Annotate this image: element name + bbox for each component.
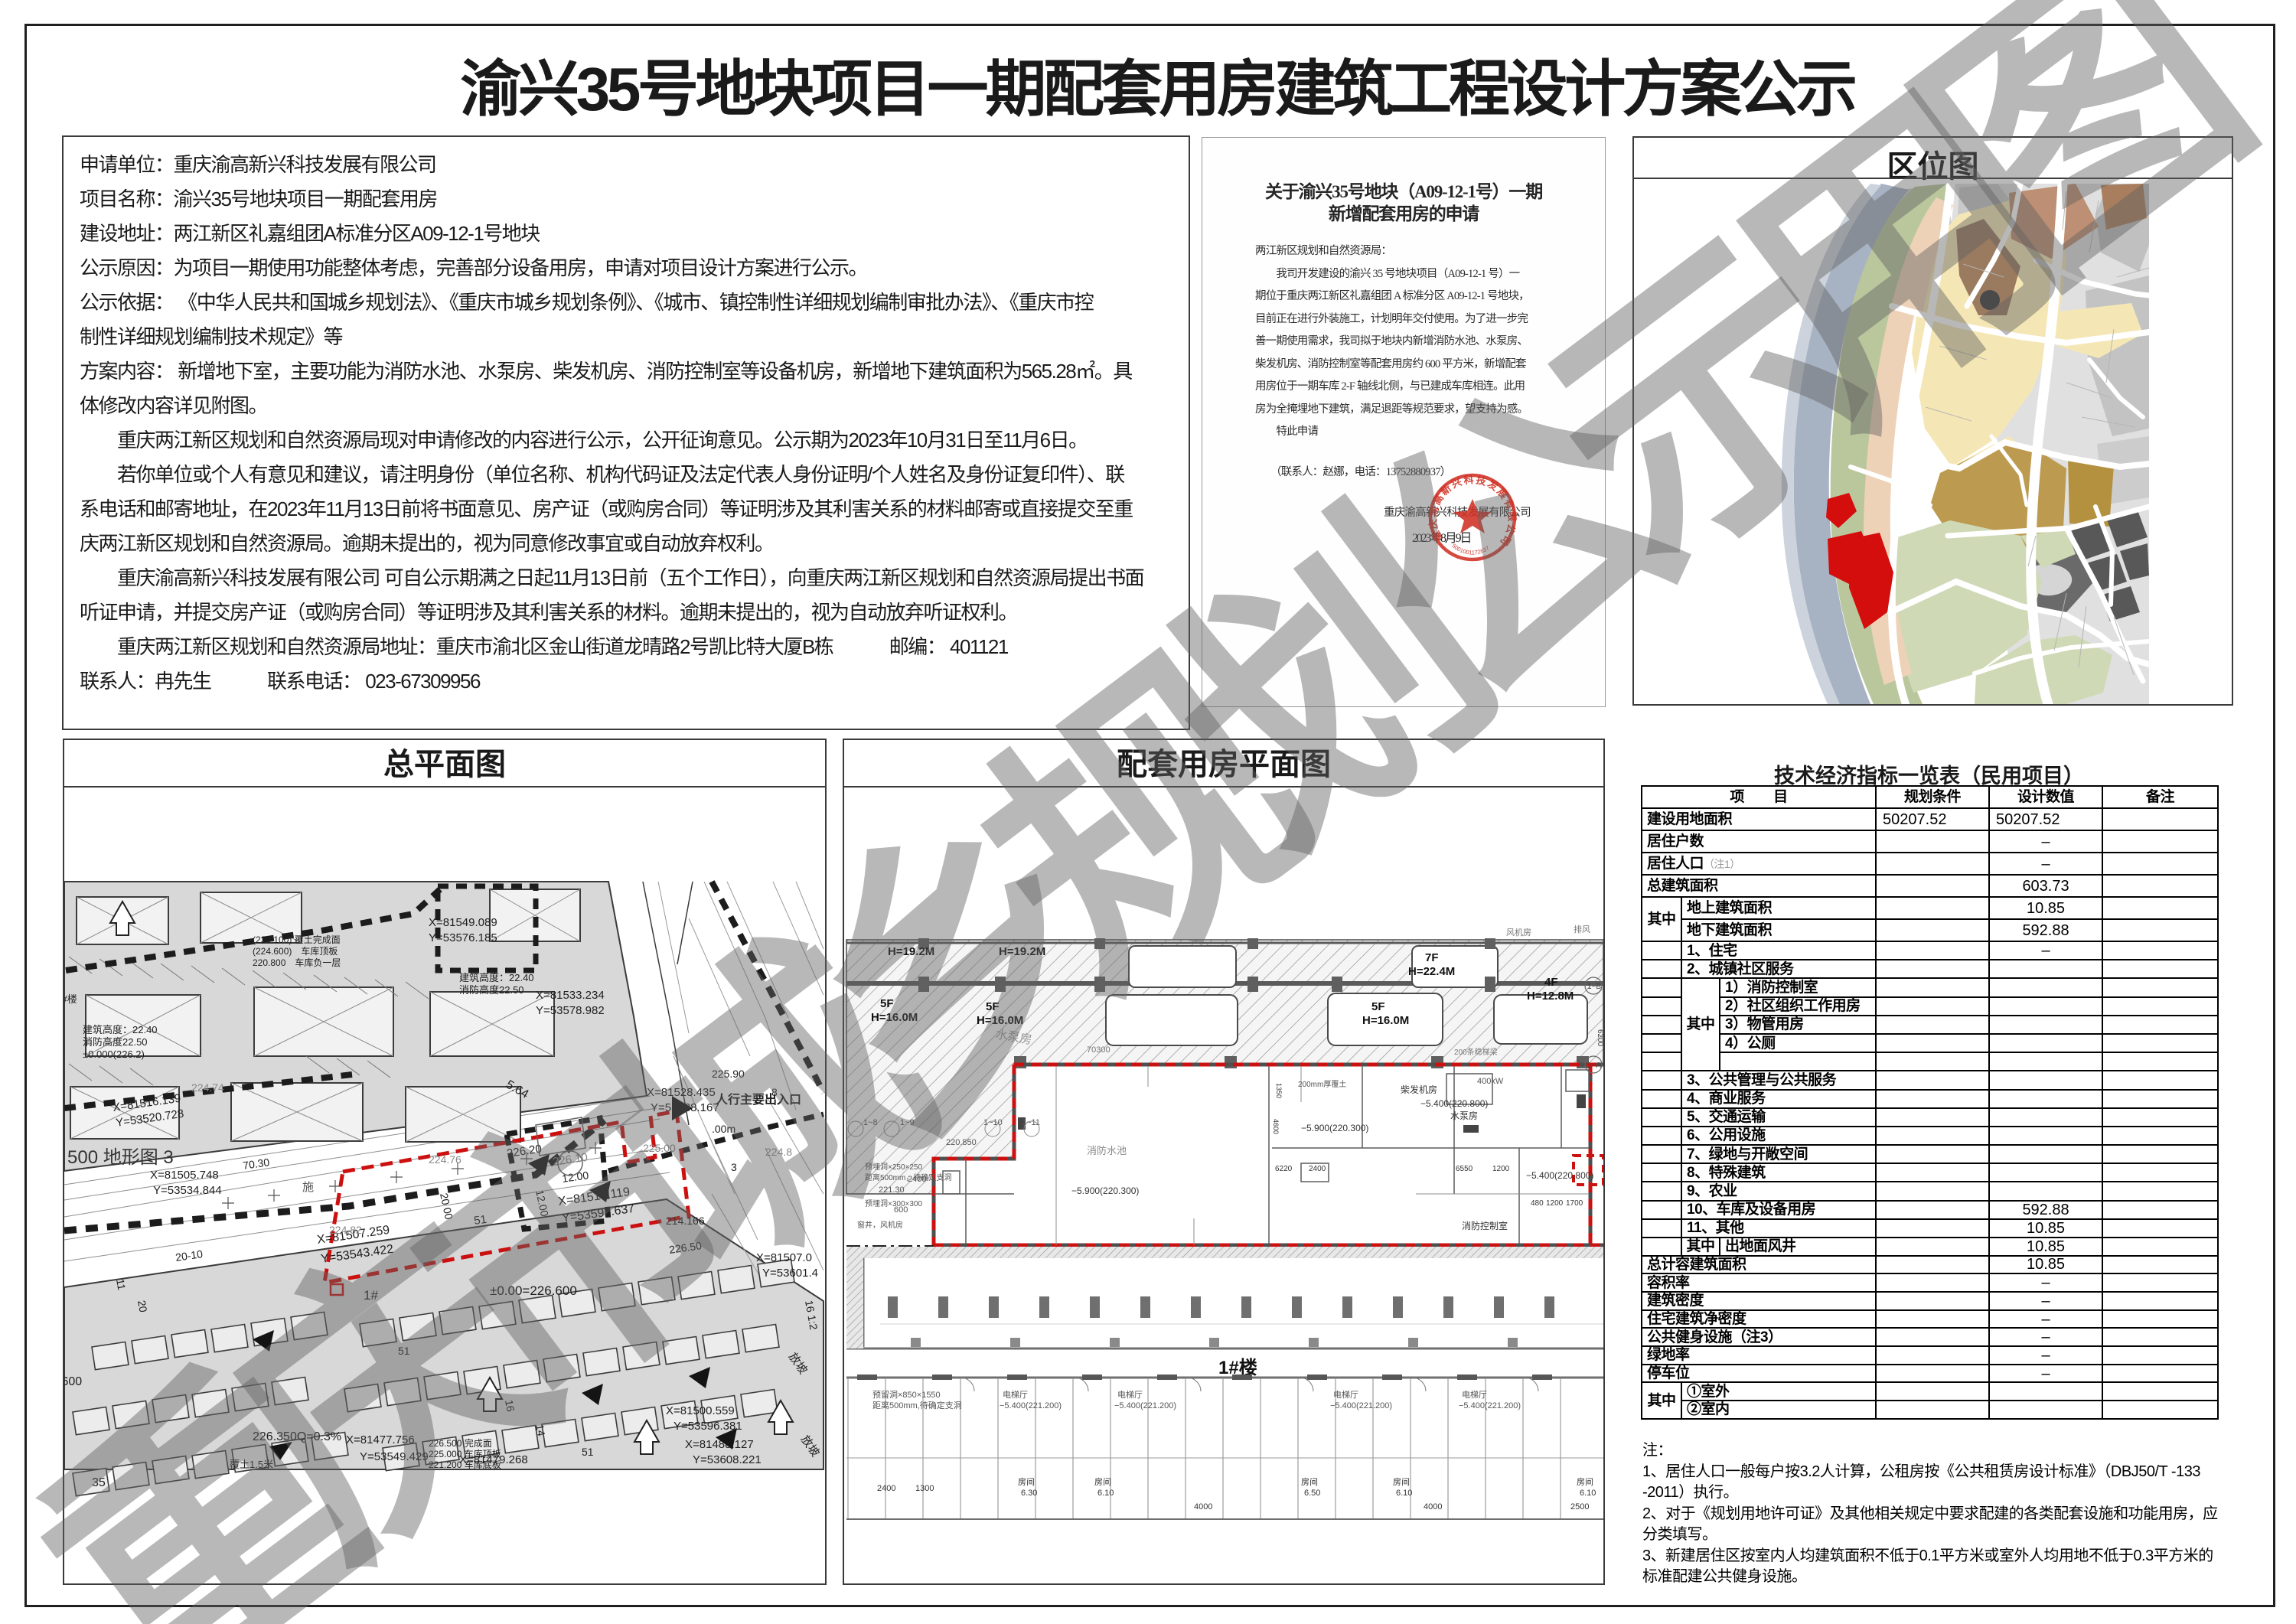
svg-text:226.500 完成面: 226.500 完成面 [429,1437,492,1449]
svg-text:6220: 6220 [1275,1165,1293,1173]
svg-text:建筑高度：22.40: 建筑高度：22.40 [459,972,534,983]
svg-text:1200: 1200 [1492,1165,1510,1173]
svg-text:−5.400(220.800): −5.400(220.800) [1526,1170,1593,1181]
svg-text:6.50: 6.50 [1304,1489,1320,1498]
svg-text:H=22.4M: H=22.4M [1408,965,1455,978]
svg-text:1~8: 1~8 [863,1118,878,1127]
svg-text:35: 35 [92,1476,106,1489]
svg-text:−5.400(221.200): −5.400(221.200) [1114,1401,1176,1410]
svg-text:消防控制室: 消防控制室 [1462,1220,1508,1231]
svg-text:225.90: 225.90 [712,1068,745,1080]
svg-text:X=81488.127: X=81488.127 [685,1438,754,1451]
svg-text:1~B: 1~B [1587,983,1601,991]
svg-text:房间: 房间 [1393,1477,1410,1487]
svg-text:12.00: 12.00 [533,1189,551,1218]
svg-text:.00m: .00m [712,1123,735,1135]
svg-text:Y=53608.221: Y=53608.221 [693,1453,762,1466]
svg-text:6550: 6550 [1456,1165,1473,1173]
svg-text:4600: 4600 [1272,1119,1280,1134]
svg-text:224.8: 224.8 [765,1146,792,1158]
svg-text:221.200 车库底板: 221.200 车库底板 [429,1459,501,1470]
svg-text:224.74: 224.74 [191,1081,224,1094]
svg-text:预埋洞×250×250: 预埋洞×250×250 [865,1163,922,1172]
svg-text:1350: 1350 [1275,1083,1283,1098]
svg-text:−5.900(220.300): −5.900(220.300) [1071,1185,1139,1196]
svg-text:预留洞×850×1550: 预留洞×850×1550 [872,1390,941,1400]
svg-text:2400: 2400 [908,1175,926,1184]
svg-text:226.10: 226.10 [552,1151,589,1169]
svg-text:消防水池: 消防水池 [1087,1145,1127,1156]
svg-text:51: 51 [398,1345,410,1357]
svg-text:225.000 车库顶板: 225.000 车库顶板 [429,1448,501,1459]
svg-text:400kW: 400kW [1477,1077,1504,1086]
svg-text:4F: 4F [1544,976,1558,989]
svg-text:(224.600) 车库顶板: (224.600) 车库顶板 [253,945,338,957]
svg-text:14: 14 [533,1423,547,1437]
svg-text:2400: 2400 [877,1484,895,1493]
svg-text:226.20: 226.20 [506,1143,543,1160]
svg-text:500 地形图 3: 500 地形图 3 [67,1147,174,1168]
svg-text:−5.400(221.200): −5.400(221.200) [1000,1401,1062,1410]
svg-text:X=81500.559: X=81500.559 [666,1404,735,1417]
svg-text:人行主要出入口: 人行主要出入口 [716,1092,801,1107]
svg-text:224.76: 224.76 [429,1153,461,1166]
svg-text:51: 51 [473,1213,488,1228]
svg-text:5001001172637: 5001001172637 [1450,543,1490,556]
svg-text:1~A: 1~A [1587,1061,1601,1070]
svg-text:12.00: 12.00 [561,1169,589,1185]
svg-text:214.166: 214.166 [666,1215,705,1227]
svg-text:220.850: 220.850 [946,1138,977,1147]
svg-text:600: 600 [894,1205,908,1215]
svg-text:电梯厅: 电梯厅 [1333,1390,1358,1400]
svg-text:11: 11 [114,1278,128,1291]
svg-text:±0.00=226.600: ±0.00=226.600 [490,1283,577,1298]
svg-text:6.10: 6.10 [1097,1489,1114,1498]
svg-text:1~9: 1~9 [900,1118,915,1127]
svg-text:X=81549.089: X=81549.089 [429,916,497,929]
svg-text:风机房: 风机房 [1506,927,1531,938]
svg-text:20: 20 [135,1300,149,1313]
svg-text:200条稳梯梁: 200条稳梯梁 [1454,1047,1498,1057]
svg-text:Y=53549.429: Y=53549.429 [360,1450,429,1463]
svg-text:1200: 1200 [1546,1199,1564,1208]
svg-text:Y=53576.185: Y=53576.185 [429,931,497,944]
svg-text:480: 480 [1531,1199,1544,1208]
svg-text:−5.400(220.800): −5.400(220.800) [1420,1098,1488,1109]
svg-text:Y=53534.844: Y=53534.844 [153,1184,222,1197]
svg-text:水泵房: 水泵房 [1450,1110,1478,1121]
svg-text:H=16.0M: H=16.0M [871,1011,918,1024]
svg-text:1#: 1# [364,1288,378,1303]
svg-text:=226.600: =226.600 [64,1375,82,1388]
svg-text:28#楼: 28#楼 [64,993,77,1005]
svg-text:H=16.0M: H=16.0M [1362,1014,1409,1027]
svg-text:X=81505.748: X=81505.748 [150,1169,219,1182]
svg-text:消防高度22.50: 消防高度22.50 [83,1036,148,1048]
svg-text:H=19.2M: H=19.2M [888,945,934,958]
svg-text:6.10: 6.10 [1396,1489,1412,1498]
svg-text:消防高度22.50: 消防高度22.50 [459,984,524,996]
svg-text:1300: 1300 [915,1484,934,1493]
svg-text:电梯厅: 电梯厅 [1462,1390,1487,1400]
svg-text:X=81533.234: X=81533.234 [536,989,605,1002]
svg-text:X=81507.0: X=81507.0 [756,1251,812,1264]
svg-text:8: 8 [771,1086,778,1098]
svg-text:6200: 6200 [1596,1029,1603,1047]
svg-text:1700: 1700 [1566,1199,1583,1208]
svg-text:Y=53601.4: Y=53601.4 [762,1267,818,1280]
svg-text:柴发机房: 柴发机房 [1401,1084,1437,1095]
svg-text:建筑高度：22.40: 建筑高度：22.40 [83,1024,158,1035]
svg-text:5F: 5F [880,997,894,1010]
svg-text:电梯厅: 电梯厅 [1117,1390,1143,1400]
svg-text:220.800 车库负一层: 220.800 车库负一层 [253,957,341,968]
svg-text:房间: 房间 [1018,1477,1035,1487]
svg-text:5F: 5F [986,1000,1000,1013]
svg-text:3: 3 [731,1161,737,1173]
svg-text:电梯厅: 电梯厅 [1003,1390,1028,1400]
svg-text:房间: 房间 [1301,1477,1318,1487]
svg-text:覆土1.5米: 覆土1.5米 [230,1459,273,1470]
svg-text:H=12.8M: H=12.8M [1527,990,1574,1003]
svg-text:2400: 2400 [1309,1165,1326,1173]
svg-text:70.30: 70.30 [242,1156,270,1172]
svg-text:6.10: 6.10 [1580,1489,1596,1498]
svg-text:4000: 4000 [1194,1502,1212,1511]
svg-text:200mm厚覆土: 200mm厚覆土 [1298,1079,1346,1089]
svg-text:224.82: 224.82 [329,1224,362,1236]
svg-text:±0.000(226.2): ±0.000(226.2) [83,1048,145,1060]
svg-text:排风: 排风 [1574,924,1590,934]
svg-text:−5.400(221.200): −5.400(221.200) [1459,1401,1521,1410]
svg-text:房间: 房间 [1577,1477,1593,1487]
svg-text:20 00: 20 00 [438,1192,455,1221]
svg-text:房间: 房间 [1094,1477,1111,1487]
svg-text:20-10: 20-10 [174,1247,204,1264]
svg-text:窗井，风机房: 窗井，风机房 [857,1220,903,1230]
svg-text:2500: 2500 [1570,1502,1589,1511]
svg-text:6.30: 6.30 [1021,1489,1037,1498]
svg-text:−5.400(221.200): −5.400(221.200) [1330,1401,1392,1410]
svg-text:施: 施 [302,1181,314,1194]
svg-text:225.00: 225.00 [643,1142,676,1154]
svg-text:距离500mm,待确定支洞: 距离500mm,待确定支洞 [872,1400,962,1410]
svg-text:Y=53578.982: Y=53578.982 [536,1004,605,1017]
svg-text:226.350Q=0.3%: 226.350Q=0.3% [253,1430,341,1443]
svg-text:16: 16 [503,1399,517,1413]
svg-text:5F: 5F [1371,1000,1385,1013]
svg-text:4000: 4000 [1424,1502,1442,1511]
svg-text:−5.900(220.300): −5.900(220.300) [1301,1123,1368,1133]
svg-text:X=81477.756: X=81477.756 [346,1433,415,1446]
svg-text:70300: 70300 [1087,1045,1110,1055]
svg-text:H=19.2M: H=19.2M [999,945,1045,958]
svg-text:51: 51 [582,1446,594,1458]
svg-text:7F: 7F [1425,951,1439,964]
svg-text:H=16.0M: H=16.0M [977,1014,1023,1027]
svg-text:221.30: 221.30 [879,1185,905,1195]
svg-text:(226.100) 覆土完成面: (226.100) 覆土完成面 [253,934,341,945]
svg-text:X=81528.435: X=81528.435 [647,1086,716,1099]
